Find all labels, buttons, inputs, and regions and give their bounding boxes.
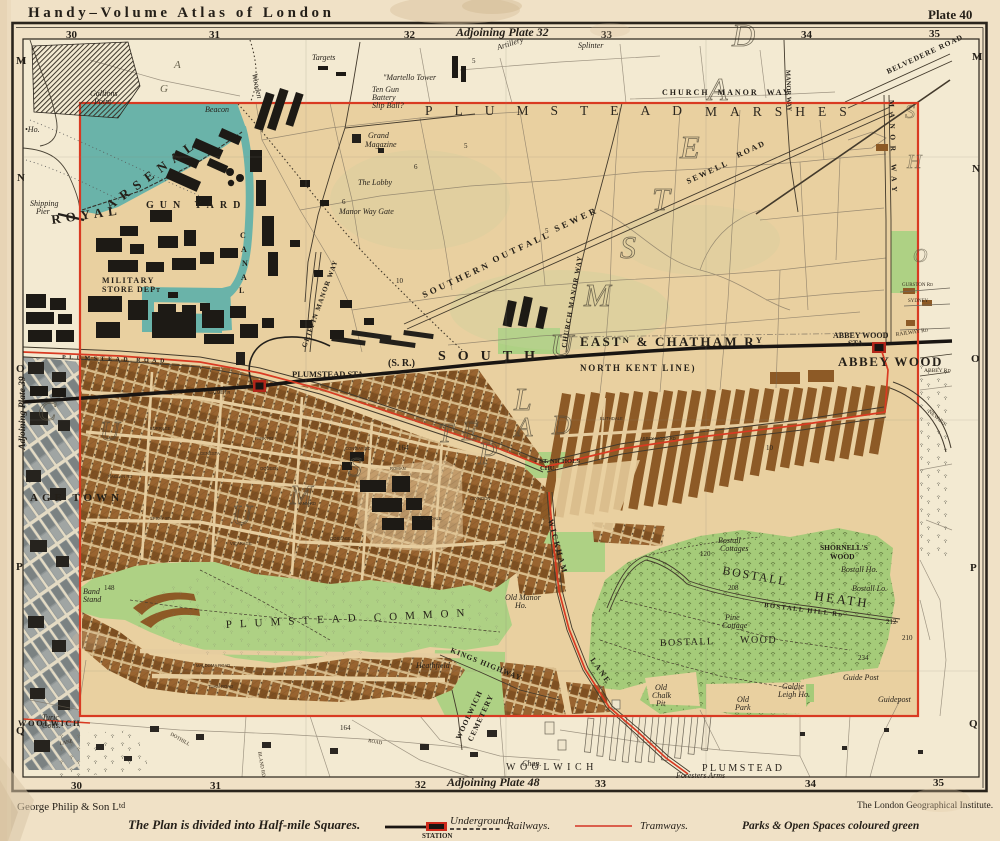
svg-text:6: 6 (342, 198, 346, 206)
svg-text:6: 6 (414, 163, 418, 171)
svg-text:George Philip & Son Ltd: George Philip & Son Ltd (17, 801, 125, 813)
svg-text:5: 5 (472, 57, 476, 65)
svg-text:VICARAGE: VICARAGE (230, 541, 252, 546)
svg-text:Underground: Underground (450, 815, 510, 827)
svg-text:BURRAGE: BURRAGE (150, 426, 171, 431)
svg-text:Beacon: Beacon (205, 105, 229, 114)
svg-text:G: G (160, 83, 168, 95)
svg-text:A: A (241, 245, 247, 254)
svg-text:212: 212 (886, 618, 897, 626)
svg-text:NORTH KENT LINE): NORTH KENT LINE) (580, 363, 696, 373)
svg-text:S: S (620, 229, 636, 265)
svg-text:STA.: STA. (848, 339, 865, 348)
svg-text:S: S (905, 101, 915, 123)
svg-text:M: M (16, 55, 27, 67)
svg-text:Park: Park (734, 703, 751, 712)
svg-text:Bostall Lo.: Bostall Lo. (852, 584, 887, 593)
svg-text:TUAM ROAD: TUAM ROAD (208, 684, 233, 689)
svg-text:PLUMSTEAD STA.: PLUMSTEAD STA. (292, 369, 366, 379)
svg-text:WALMER R: WALMER R (208, 390, 230, 395)
svg-text:SYDNEY: SYDNEY (908, 299, 929, 304)
svg-text:Leigh Ho.: Leigh Ho. (777, 690, 810, 699)
svg-text:10: 10 (766, 444, 774, 452)
svg-text:Plate 40: Plate 40 (928, 7, 972, 22)
svg-text:Railways.: Railways. (506, 820, 550, 832)
svg-text:O: O (971, 353, 980, 365)
svg-text:O: O (913, 245, 927, 267)
svg-text:E: E (679, 129, 700, 165)
svg-text:WOOD: WOOD (830, 552, 855, 561)
svg-text:Pier: Pier (35, 207, 51, 216)
svg-text:Guidepost: Guidepost (878, 695, 912, 704)
svg-text:164: 164 (340, 724, 351, 732)
svg-text:S: S (348, 452, 362, 482)
svg-text:Q: Q (16, 725, 25, 737)
svg-text:Chap.: Chap. (522, 759, 541, 768)
svg-text:The Plan is divided into Half-: The Plan is divided into Half-mile Squar… (128, 817, 360, 832)
svg-text:RAGLAN RD: RAGLAN RD (108, 474, 132, 479)
svg-text:A: A (173, 59, 181, 71)
svg-text:PARK RD: PARK RD (255, 436, 273, 441)
svg-text:CHU.: CHU. (540, 465, 556, 472)
svg-text:Splinter: Splinter (578, 41, 604, 50)
svg-text:M: M (972, 51, 983, 63)
svg-text:SOUTH: SOUTH (438, 349, 547, 364)
svg-text:T: T (438, 418, 455, 448)
svg-text:D: D (551, 410, 572, 440)
svg-text:120: 120 (700, 550, 711, 558)
svg-text:Parks & Open Spaces coloured g: Parks & Open Spaces coloured green (742, 820, 919, 832)
svg-text:ABBEY WOOD RD: ABBEY WOOD RD (640, 436, 676, 441)
svg-text:OQUEEN: OQUEEN (260, 466, 278, 471)
svg-text:GENESTA: GENESTA (200, 451, 220, 456)
svg-text:Adjoining Plate 48: Adjoining Plate 48 (446, 775, 540, 789)
svg-text:MARSHES: MARSHES (705, 104, 860, 119)
svg-text:5: 5 (464, 142, 468, 150)
svg-text:32: 32 (415, 779, 427, 791)
svg-text:(S. R.): (S. R.) (388, 358, 415, 369)
svg-text:35: 35 (933, 777, 945, 789)
svg-text:34: 34 (801, 29, 813, 41)
svg-text:•Ho.: •Ho. (25, 125, 40, 134)
svg-text:Magazine: Magazine (364, 140, 397, 149)
svg-text:T: T (652, 181, 672, 217)
svg-text:A: A (514, 412, 533, 442)
svg-text:32: 32 (404, 29, 416, 41)
svg-text:PLUMSTEAD: PLUMSTEAD (425, 103, 704, 118)
svg-text:Ho.: Ho. (514, 601, 527, 610)
svg-text:STORE DEPT: STORE DEPT (102, 285, 161, 294)
svg-text:Q: Q (969, 718, 978, 730)
svg-text:N: N (972, 163, 980, 175)
svg-text:GOSSAGE: GOSSAGE (330, 536, 351, 541)
svg-text:H: H (906, 151, 923, 173)
svg-text:31: 31 (209, 29, 220, 41)
svg-text:Grand: Grand (368, 131, 390, 140)
svg-text:WOOD: WOOD (740, 635, 777, 646)
svg-text:Guide Post: Guide Post (843, 673, 880, 682)
svg-text:5: 5 (545, 227, 549, 235)
svg-text:Point: Point (93, 97, 112, 106)
svg-text:STATION: STATION (422, 832, 452, 840)
svg-text:10: 10 (396, 277, 404, 285)
svg-text:Manor Way Gate: Manor Way Gate (338, 207, 394, 216)
svg-text:Targets: Targets (312, 53, 335, 62)
svg-text:Stand: Stand (83, 595, 102, 604)
svg-text:AGE TOWN: AGE TOWN (30, 492, 123, 504)
svg-text:Tramways.: Tramways. (640, 820, 688, 832)
svg-text:GURSTON RD: GURSTON RD (902, 282, 933, 288)
svg-text:Foresters Arms: Foresters Arms (675, 771, 725, 780)
svg-text:WOOLWICH: WOOLWICH (506, 762, 598, 773)
svg-text:148: 148 (104, 584, 115, 592)
svg-text:MANOR WAY: MANOR WAY (784, 70, 792, 112)
svg-text:CONWAY RD: CONWAY RD (345, 446, 371, 451)
svg-text:234: 234 (858, 654, 869, 662)
svg-text:GLYNDON: GLYNDON (470, 496, 490, 501)
svg-text:30: 30 (66, 29, 78, 41)
svg-text:Slip Ball?: Slip Ball? (372, 101, 404, 110)
svg-text:Pit: Pit (655, 699, 666, 708)
svg-text:BOSTALL: BOSTALL (660, 636, 715, 649)
svg-text:Cottage: Cottage (722, 621, 748, 630)
svg-text:"Martello Tower: "Martello Tower (383, 73, 437, 82)
svg-text:ANN RD: ANN RD (300, 501, 316, 506)
svg-text:164: 164 (398, 444, 409, 452)
svg-text:C: C (240, 231, 246, 240)
svg-text:P: P (16, 561, 23, 573)
svg-text:Cottages: Cottages (720, 544, 748, 553)
svg-text:SPRAY ST: SPRAY ST (150, 516, 171, 521)
svg-text:E: E (461, 416, 479, 446)
svg-text:Heathfield: Heathfield (415, 661, 451, 670)
svg-text:A: A (241, 273, 247, 282)
svg-text:P: P (970, 562, 977, 574)
svg-text:ABBEY RD: ABBEY RD (924, 368, 951, 374)
svg-text:U: U (100, 416, 121, 446)
svg-text:33: 33 (595, 778, 607, 790)
svg-text:M: M (583, 277, 613, 313)
svg-text:The Lobby: The Lobby (358, 178, 392, 187)
svg-text:N: N (242, 259, 248, 268)
svg-text:N: N (17, 172, 25, 184)
svg-text:Cotts.: Cotts. (42, 721, 61, 730)
svg-text:Bostall Ho.: Bostall Ho. (841, 565, 877, 574)
svg-text:CHURCH MANOR WAY: CHURCH MANOR WAY (662, 88, 791, 97)
svg-text:U: U (232, 500, 253, 530)
svg-text:35: 35 (929, 28, 941, 40)
svg-text:208: 208 (728, 584, 739, 592)
svg-text:Handy–Volume Atlas of London: Handy–Volume Atlas of London (28, 5, 335, 21)
svg-text:LAKEDALE: LAKEDALE (420, 516, 442, 521)
svg-text:L: L (239, 286, 244, 295)
svg-text:MILITARY: MILITARY (102, 276, 155, 285)
svg-text:C: C (38, 396, 57, 426)
svg-text:ABBEY WOOD: ABBEY WOOD (838, 354, 943, 369)
svg-text:210: 210 (902, 634, 913, 642)
svg-text:31: 31 (210, 780, 221, 792)
svg-text:GUN YARD: GUN YARD (146, 200, 246, 211)
svg-text:ROMAN: ROMAN (390, 466, 406, 471)
svg-text:P: P (477, 435, 498, 471)
svg-text:30: 30 (71, 780, 83, 792)
svg-text:O: O (16, 363, 25, 375)
svg-text:34: 34 (805, 778, 817, 790)
svg-text:EASTN & CHATHAM RY: EASTN & CHATHAM RY (580, 334, 764, 349)
svg-text:Adjoining Plate 39: Adjoining Plate 39 (18, 376, 28, 451)
svg-text:Adjoining Plate 32: Adjoining Plate 32 (455, 25, 549, 39)
svg-text:SHORNELL'S: SHORNELL'S (820, 543, 868, 552)
svg-text:MALDOMA ROAD: MALDOMA ROAD (196, 663, 230, 668)
svg-text:+ ST. NICHOLS: + ST. NICHOLS (534, 458, 580, 465)
